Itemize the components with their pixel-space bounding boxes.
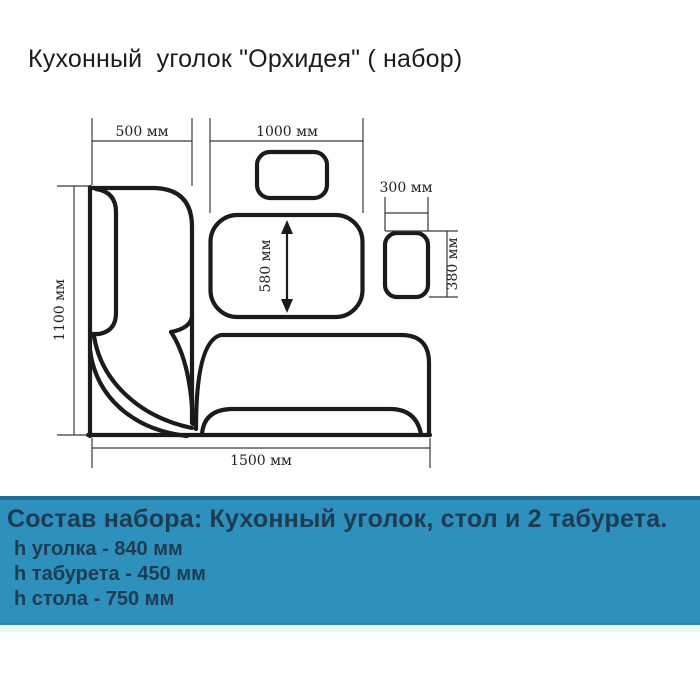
dim-label-1500: 1500 мм	[230, 453, 292, 469]
dim-label-380: 380 мм	[445, 237, 461, 290]
set-contents-panel: Состав набора: Кухонный уголок, стол и 2…	[0, 496, 700, 625]
dim-label-1100: 1100 мм	[52, 279, 68, 341]
stool-top-view-upper	[257, 152, 327, 198]
stool-top-view-right	[385, 233, 428, 297]
bench-backrest-inner	[90, 189, 116, 334]
corner-leaf-curve	[171, 332, 193, 424]
panel-bottom-shadow	[0, 625, 700, 632]
spec-line-stool-height: h табурета - 450 мм	[14, 562, 700, 587]
bench-right-seat-edge	[202, 409, 421, 434]
dim-label-500: 500 мм	[116, 124, 169, 140]
dim-label-300: 300 мм	[380, 180, 433, 196]
corner-seat-arc-1	[94, 336, 192, 428]
product-sheet: Кухонный уголок "Орхидея" ( набор)	[0, 0, 700, 700]
spec-line-table-height: h стола - 750 мм	[14, 587, 700, 612]
dim-label-1000: 1000 мм	[256, 124, 318, 140]
spec-line-corner-height: h уголка - 840 мм	[14, 537, 700, 562]
bench-right-back-edge	[196, 335, 429, 433]
corner-bench-drawing	[88, 187, 430, 436]
bench-backrest-outer	[90, 188, 192, 332]
table-depth-arrow	[281, 220, 293, 313]
dim-label-580: 580 мм	[258, 239, 274, 292]
set-contents-heading: Состав набора: Кухонный уголок, стол и 2…	[0, 500, 700, 537]
